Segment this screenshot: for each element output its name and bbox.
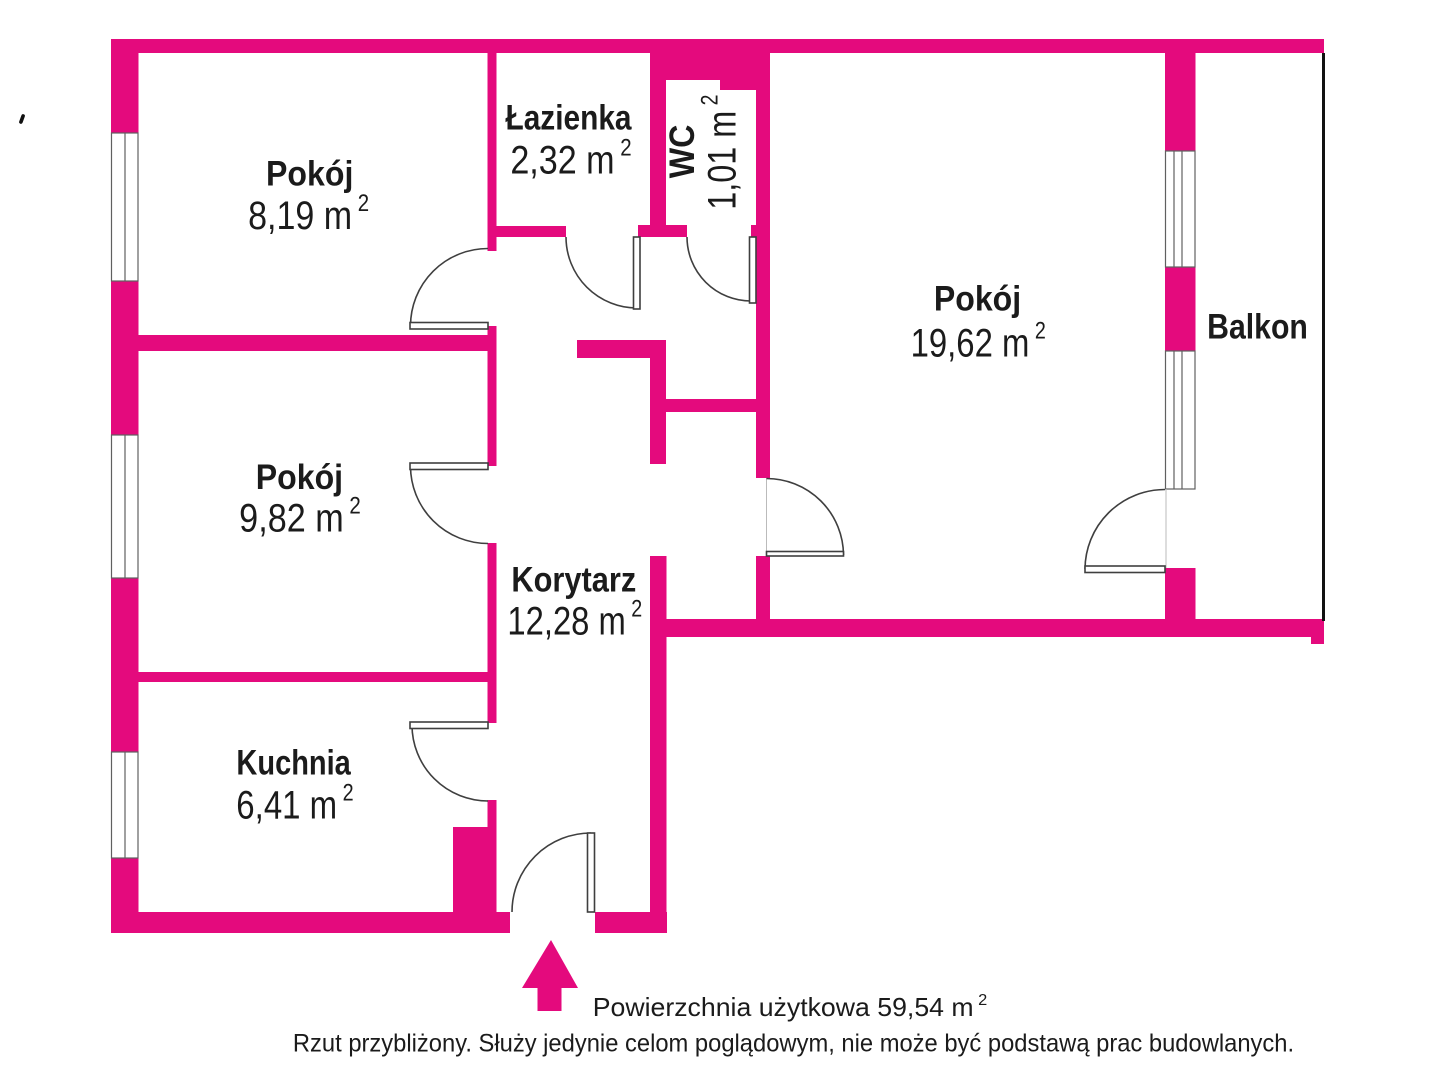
svg-text:Pokój: Pokój	[934, 280, 1021, 319]
svg-text:Kuchnia: Kuchnia	[236, 743, 351, 782]
svg-text:Korytarz: Korytarz	[511, 560, 636, 599]
svg-text:WC: WC	[664, 125, 703, 179]
svg-text:9,82 m 2: 9,82 m 2	[239, 492, 361, 540]
svg-text:Pokój: Pokój	[256, 459, 343, 498]
svg-text:Powierzchnia użytkowa 59,54 m: Powierzchnia użytkowa 59,54 m 2	[593, 991, 988, 1022]
svg-text:6,41 m 2: 6,41 m 2	[236, 779, 353, 828]
svg-text:8,19 m 2: 8,19 m 2	[248, 190, 369, 238]
svg-text:Łazienka: Łazienka	[505, 98, 632, 137]
svg-text:Rzut przybliżony. Służy jedyni: Rzut przybliżony. Służy jedynie celom po…	[293, 1030, 1294, 1058]
svg-text:Balkon: Balkon	[1207, 306, 1308, 346]
svg-text:Pokój: Pokój	[266, 155, 353, 194]
svg-text:12,28 m 2: 12,28 m 2	[507, 594, 642, 643]
svg-text:1,01 m 2: 1,01 m 2	[696, 95, 745, 210]
svg-text:2,32 m 2: 2,32 m 2	[510, 134, 631, 182]
svg-text:19,62 m 2: 19,62 m 2	[911, 316, 1046, 365]
